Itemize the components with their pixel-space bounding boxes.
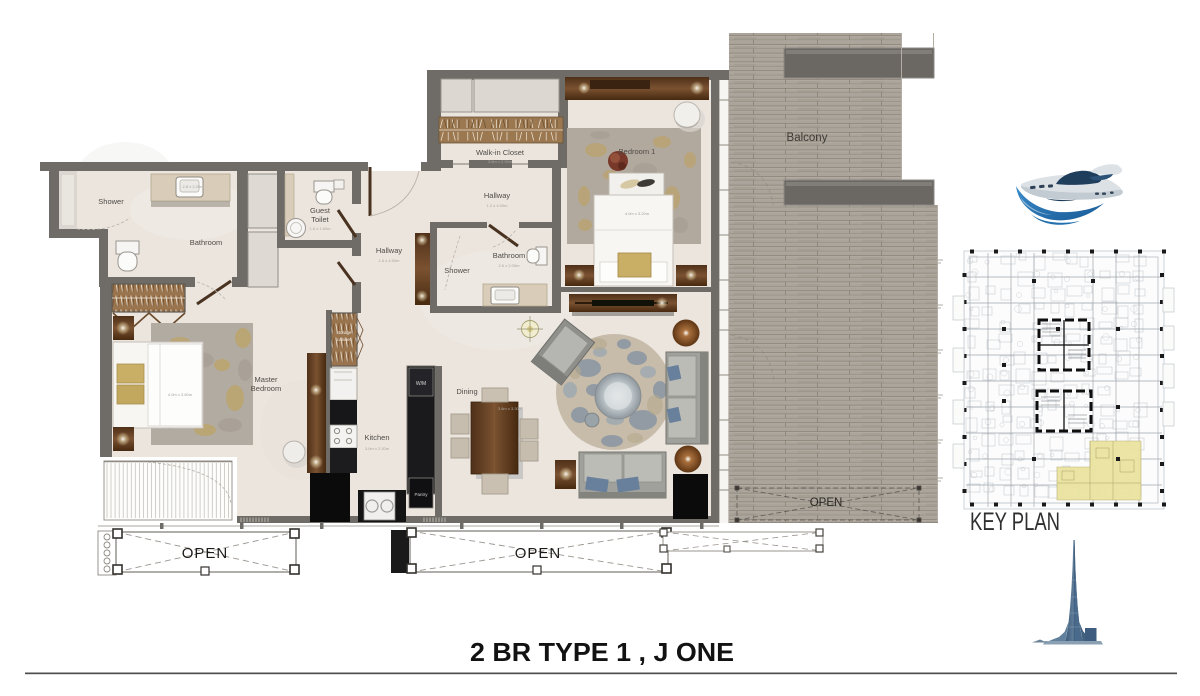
svg-text:4.0m x 3.20m: 4.0m x 3.20m (625, 211, 650, 216)
svg-text:Guest: Guest (310, 206, 331, 215)
svg-text:Shower: Shower (444, 266, 470, 275)
svg-text:Bathroom: Bathroom (190, 238, 223, 247)
svg-text:1.6 x 4.50m: 1.6 x 4.50m (379, 258, 401, 263)
svg-text:1.6 x 1.60m: 1.6 x 1.60m (310, 226, 332, 231)
svg-text:2 BR TYPE 1 , J ONE: 2 BR TYPE 1 , J ONE (470, 637, 734, 667)
svg-text:W/M: W/M (416, 381, 426, 387)
svg-text:3.6m x 2.00m: 3.6m x 2.00m (488, 159, 513, 164)
svg-text:3.0m x 2.20m: 3.0m x 2.20m (365, 446, 390, 451)
svg-text:2.6 x 2.00m: 2.6 x 2.00m (499, 263, 521, 268)
svg-text:Master: Master (255, 375, 278, 384)
svg-text:cabinet: cabinet (337, 337, 352, 342)
svg-text:OPEN: OPEN (810, 497, 843, 509)
svg-text:1.2 x 4.00m: 1.2 x 4.00m (487, 203, 509, 208)
svg-text:Kitchen: Kitchen (364, 433, 389, 442)
svg-text:Hallway: Hallway (376, 246, 403, 255)
svg-text:Bathroom: Bathroom (493, 251, 526, 260)
svg-text:Walk-in Closet: Walk-in Closet (476, 148, 525, 157)
svg-text:Toilet: Toilet (311, 215, 329, 224)
svg-text:3.6m x 3.30m: 3.6m x 3.30m (498, 406, 523, 411)
svg-text:Bedroom 1: Bedroom 1 (619, 147, 656, 156)
svg-text:Bedroom: Bedroom (251, 384, 281, 393)
svg-text:Balcony: Balcony (787, 132, 828, 144)
svg-text:2.8 x 2.20m: 2.8 x 2.20m (183, 184, 205, 189)
svg-text:storage: storage (336, 330, 352, 335)
svg-text:Dining: Dining (456, 387, 477, 396)
svg-text:OPEN: OPEN (182, 545, 229, 562)
svg-text:OPEN: OPEN (515, 545, 562, 562)
svg-text:Shower: Shower (98, 197, 124, 206)
svg-text:Pantry: Pantry (414, 492, 428, 497)
svg-text:4.0m x 3.60m: 4.0m x 3.60m (168, 392, 193, 397)
svg-text:KEY PLAN: KEY PLAN (970, 508, 1060, 536)
svg-text:Hallway: Hallway (484, 191, 511, 200)
